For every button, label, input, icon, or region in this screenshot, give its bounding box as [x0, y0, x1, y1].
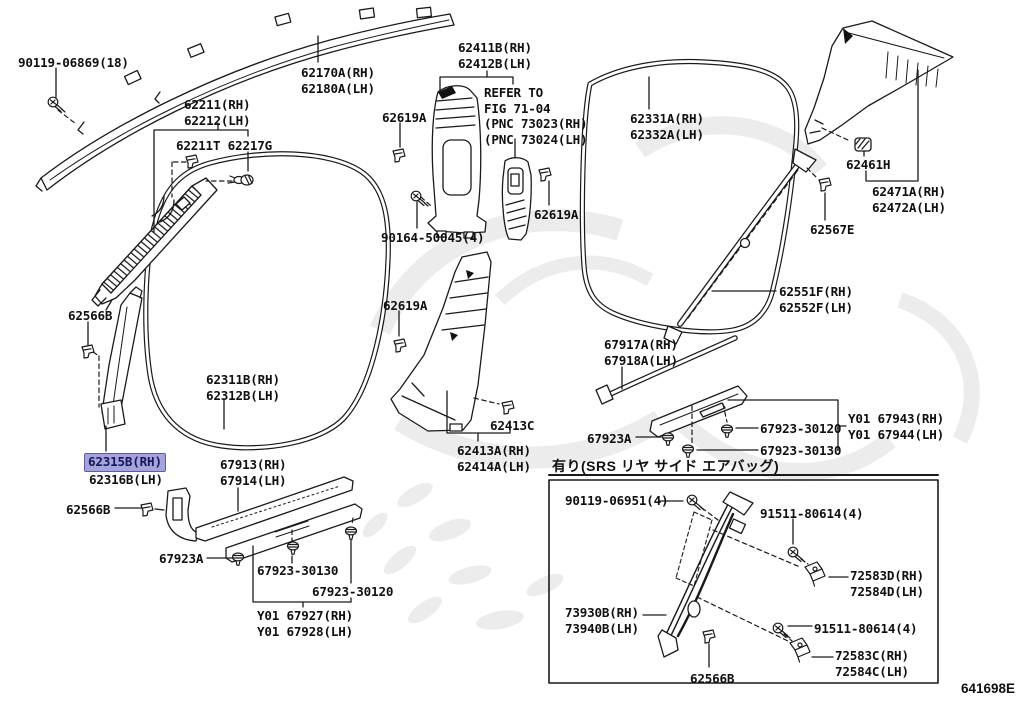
screw-icon	[411, 191, 428, 206]
part-label-67923-30120-2[interactable]: 67923-30120	[312, 584, 393, 600]
part-label-62566B-1[interactable]: 62566B	[68, 308, 112, 324]
part-label-67923-30130-2[interactable]: 67923-30130	[257, 563, 338, 579]
part-label-Y01-67927[interactable]: Y01 67927(RH)Y01 67928(LH)	[257, 608, 353, 639]
front-scuff-plates	[166, 477, 362, 562]
part-label-62413A[interactable]: 62413A(RH)62414A(LH)	[457, 443, 531, 474]
part-label-62471A[interactable]: 62471A(RH)62472A(LH)	[872, 184, 946, 215]
part-label-62619A-3[interactable]: 62619A	[383, 298, 427, 314]
clip-icon	[502, 401, 514, 414]
pin-clip-icon	[346, 527, 357, 539]
part-label-62551F[interactable]: 62551F(RH)62552F(LH)	[779, 284, 853, 315]
part-label-62566B-3[interactable]: 62566B	[690, 671, 734, 687]
part-label-62619A-2[interactable]: 62619A	[534, 207, 578, 223]
bracket-icon	[805, 562, 825, 586]
b-pillar-upper-garnish	[428, 86, 486, 238]
part-label-Y01-67943[interactable]: Y01 67943(RH)Y01 67944(LH)	[848, 411, 944, 442]
part-label-62315B[interactable]: 62315B(RH)62316B(LH)	[89, 454, 166, 487]
part-label-91511-80614-1[interactable]: 91511-80614(4)	[760, 506, 863, 522]
clip-icon	[141, 503, 153, 516]
clip-icon	[394, 339, 406, 352]
part-label-62413C[interactable]: 62413C	[490, 418, 534, 434]
parts-diagram: 90119-06869(18)62170A(RH)62180A(LH)62211…	[0, 0, 1024, 707]
part-label-62566B-2[interactable]: 62566B	[66, 502, 110, 518]
part-label-90164-50045[interactable]: 90164-50045(4)	[381, 230, 484, 246]
part-label-62619A-1[interactable]: 62619A	[382, 110, 426, 126]
screw-icon	[788, 547, 805, 562]
pin-clip-icon	[288, 542, 299, 554]
part-label-62211T-62217G[interactable]: 62211T 62217G	[176, 138, 272, 154]
srs-airbag-note: 有り(SRS リヤ サイド エアバッグ)	[552, 458, 779, 475]
part-label-67923-30130-1[interactable]: 67923-30130	[760, 443, 841, 459]
grommet-62461H-icon	[855, 138, 871, 151]
screw-icon	[687, 495, 704, 510]
pin-clip-icon	[663, 433, 674, 445]
part-label-62411B[interactable]: 62411B(RH)62412B(LH)	[458, 40, 532, 71]
part-label-67923-30120-1[interactable]: 67923-30120	[760, 421, 841, 437]
pin-clip-icon	[233, 553, 244, 565]
part-label-67923A-1[interactable]: 67923A	[587, 431, 631, 447]
part-label-67917A[interactable]: 67917A(RH)67918A(LH)	[604, 337, 678, 368]
pin-clip-icon	[722, 425, 733, 437]
part-label-90119-06951[interactable]: 90119-06951(4)	[565, 493, 668, 509]
grommet-icon	[228, 175, 253, 185]
quarter-pillar-garnish	[805, 21, 953, 144]
part-label-62311B[interactable]: 62311B(RH)62312B(LH)	[206, 372, 280, 403]
part-label-62461H[interactable]: 62461H	[846, 157, 890, 173]
part-label-refer-note: REFER TOFIG 71-04(PNC 73023(RH)(PNC 7302…	[484, 85, 587, 147]
bracket-icon	[790, 638, 810, 662]
part-label-72583D[interactable]: 72583D(RH)72584D(LH)	[850, 568, 924, 599]
screw-icon	[48, 97, 65, 112]
part-label-62567E[interactable]: 62567E	[810, 222, 854, 238]
part-label-73930B[interactable]: 73930B(RH)73940B(LH)	[565, 605, 639, 636]
part-label-91511-80614-2[interactable]: 91511-80614(4)	[814, 621, 917, 637]
part-label-62211[interactable]: 62211(RH)62212(LH)	[184, 97, 250, 128]
part-label-62170A[interactable]: 62170A(RH)62180A(LH)	[301, 65, 375, 96]
clip-icon	[819, 178, 831, 191]
part-label-67913[interactable]: 67913(RH)67914(LH)	[220, 457, 286, 488]
diagram-code: 641698E	[961, 681, 1015, 696]
part-label-62331A[interactable]: 62331A(RH)62332A(LH)	[630, 111, 704, 142]
clip-icon	[82, 345, 94, 358]
part-label-67923A-2[interactable]: 67923A	[159, 551, 203, 567]
part-label-72583C[interactable]: 72583C(RH)72584C(LH)	[835, 648, 909, 679]
clip-icon	[393, 149, 405, 162]
clip-icon	[539, 168, 551, 181]
clip-icon	[703, 630, 715, 643]
pin-clip-icon	[683, 445, 694, 457]
screw-icon	[773, 623, 790, 638]
part-label-90119-06869[interactable]: 90119-06869(18)	[18, 55, 129, 71]
belt-guide-panel	[502, 158, 531, 240]
